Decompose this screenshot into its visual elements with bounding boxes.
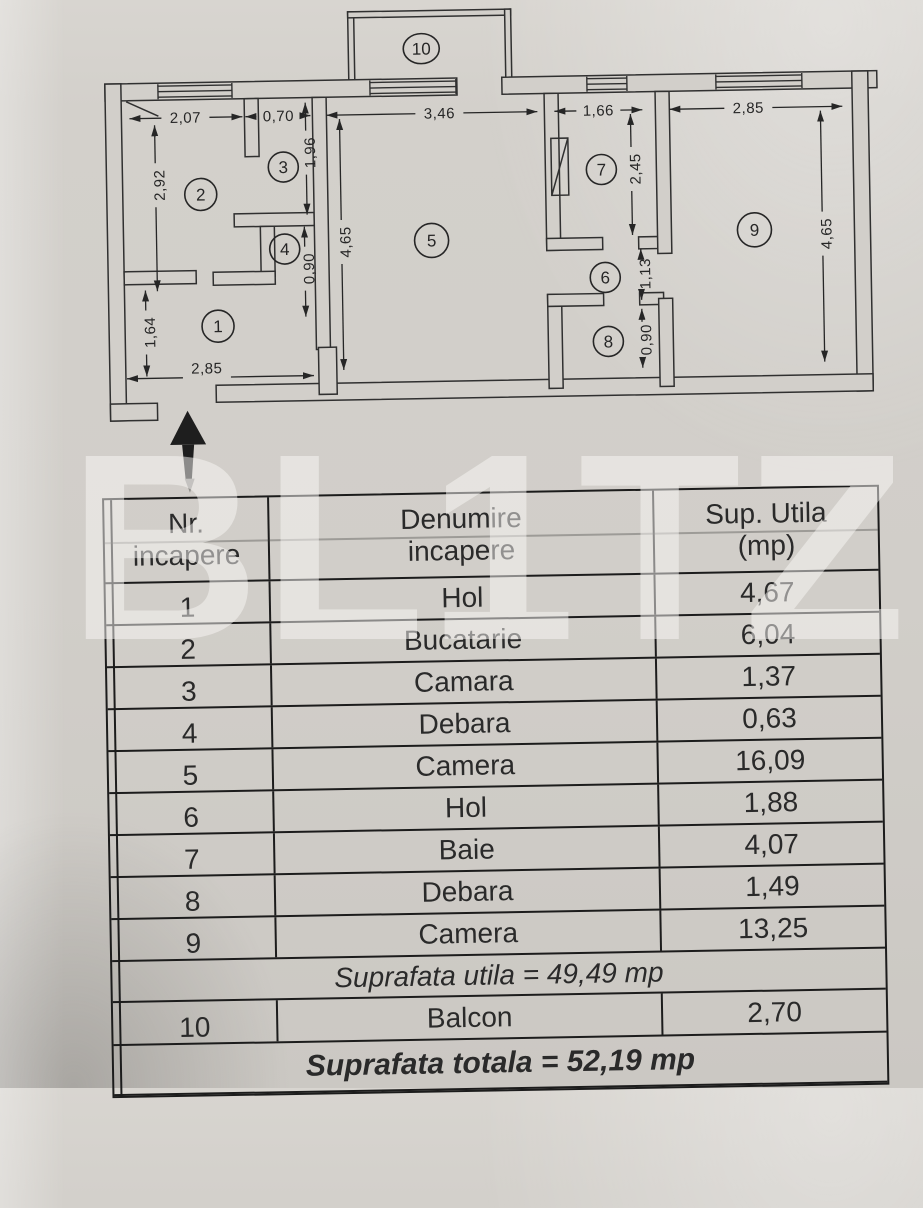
room-number-badge: 3 xyxy=(268,152,299,183)
svg-text:1: 1 xyxy=(213,317,223,336)
room-number-badge: 8 xyxy=(593,326,624,357)
wall xyxy=(260,226,275,276)
walls xyxy=(104,3,883,421)
room-area: 16,09 xyxy=(656,739,882,783)
room-nr: 10 xyxy=(179,1011,211,1044)
svg-text:8: 8 xyxy=(603,332,613,351)
room-name: Hol xyxy=(271,575,655,622)
wall xyxy=(655,91,672,253)
room-area: 1,88 xyxy=(657,781,883,825)
dimension-label: 2,85 xyxy=(733,100,764,118)
wall xyxy=(216,374,873,402)
dimension-label: 1,96 xyxy=(302,137,320,168)
room-number-badge: 5 xyxy=(414,223,449,258)
room-number-badge: 9 xyxy=(737,213,772,248)
room-nr: 5 xyxy=(182,760,198,792)
svg-text:5: 5 xyxy=(427,231,437,250)
room-area: 1,37 xyxy=(655,655,881,699)
scanned-floorplan-page: { "photo": { "paper_color": "#d2cfca", "… xyxy=(0,0,923,1088)
dimension-label: 0,90 xyxy=(638,324,656,355)
entrance-up-arrow-icon xyxy=(170,410,207,493)
svg-text:4: 4 xyxy=(280,240,290,259)
room-number-badge: 7 xyxy=(586,154,617,185)
header-name-line2: incapere xyxy=(408,534,516,568)
dimension-label: 0,90 xyxy=(301,253,319,284)
balcony-wall xyxy=(348,12,355,84)
wall xyxy=(312,97,330,349)
header-nr-line1: Nr. xyxy=(168,507,204,540)
header-area-line1: Sup. Utila xyxy=(705,497,827,531)
wall xyxy=(110,403,157,421)
wall xyxy=(124,271,196,285)
svg-text:10: 10 xyxy=(412,39,431,58)
wall xyxy=(548,294,564,388)
dimension-label: 2,45 xyxy=(627,153,645,184)
room-area-table: Nr. incapere Denumire incapere Sup. Util… xyxy=(102,485,889,1098)
room-nr: 2 xyxy=(180,634,196,666)
svg-text:7: 7 xyxy=(596,160,606,179)
dimension-label: 3,46 xyxy=(424,105,455,123)
wall xyxy=(659,298,675,386)
svg-text:2: 2 xyxy=(196,185,206,204)
svg-text:3: 3 xyxy=(278,158,288,177)
header-name-line1: Denumire xyxy=(400,502,522,536)
dimension-label: 0,70 xyxy=(263,108,294,126)
wall xyxy=(548,293,604,306)
room-nr: 9 xyxy=(185,928,201,960)
svg-text:6: 6 xyxy=(600,268,610,287)
header-area-line2: (mp) xyxy=(737,529,795,562)
room-name: Baie xyxy=(275,827,659,874)
room-name: Balcon xyxy=(278,994,662,1042)
summary-totala-text: Suprafata totala = 52,19 mp xyxy=(306,1043,696,1084)
room-nr: 1 xyxy=(179,592,195,624)
wall xyxy=(547,237,603,250)
room-number-badge: 2 xyxy=(184,178,217,211)
wall xyxy=(852,71,874,391)
table-header-row: Nr. incapere Denumire incapere Sup. Util… xyxy=(104,487,878,584)
dimension-label: 2,92 xyxy=(151,169,169,200)
room-area: 1,49 xyxy=(659,865,885,909)
room-number-badge: 6 xyxy=(590,262,621,293)
room-name: Camera xyxy=(276,911,660,958)
room-name: Camera xyxy=(273,743,657,790)
svg-text:9: 9 xyxy=(750,221,760,240)
header-nr-line2: incapere xyxy=(133,539,241,573)
door-swing-line xyxy=(126,101,158,117)
dimension-label: 2,07 xyxy=(170,109,201,127)
room-nr: 8 xyxy=(185,886,201,918)
floor-plan-drawing: 2,07 0,70 3,46 1,66 2,85 2,85 2,92 1,96 … xyxy=(0,0,922,518)
room-area: 4,07 xyxy=(658,823,884,867)
window xyxy=(587,76,627,92)
dimension-label: 2,85 xyxy=(191,360,222,378)
wall xyxy=(318,347,337,394)
room-area: 13,25 xyxy=(659,907,885,951)
summary-utila-text: Suprafata utila = 49,49 mp xyxy=(334,956,664,994)
room-nr: 6 xyxy=(183,802,199,834)
balcony-wall xyxy=(348,9,511,18)
wall xyxy=(244,98,259,156)
room-nr: 4 xyxy=(182,718,198,750)
window xyxy=(158,83,232,99)
room-area: 4,67 xyxy=(653,571,879,615)
room-nr: 3 xyxy=(181,676,197,708)
dimension-label: 4,65 xyxy=(818,218,836,249)
photo-rotation-wrap: 2,07 0,70 3,46 1,66 2,85 2,85 2,92 1,96 … xyxy=(0,0,923,1208)
balcony-wall xyxy=(505,9,512,81)
wall xyxy=(213,271,275,285)
dimension-label: 4,65 xyxy=(337,226,355,257)
dimension-label: 1,64 xyxy=(142,317,160,348)
room-name: Hol xyxy=(274,785,658,832)
dimension-label: 1,66 xyxy=(583,102,614,120)
room-name: Bucatarie xyxy=(271,617,655,664)
room-number-badge: 1 xyxy=(202,310,235,343)
room-area: 6,04 xyxy=(654,613,880,657)
room-area: 0,63 xyxy=(656,697,882,741)
dimension-label: 1,13 xyxy=(637,258,655,289)
wall xyxy=(105,84,127,421)
room-name: Debara xyxy=(276,869,660,916)
room-area: 2,70 xyxy=(661,990,887,1035)
room-name: Debara xyxy=(273,701,657,748)
room-nr: 7 xyxy=(184,844,200,876)
wall xyxy=(234,213,314,227)
wall xyxy=(502,71,877,95)
room-number-badge: 10 xyxy=(403,33,440,64)
room-name: Camara xyxy=(272,659,656,706)
dimension-labels: 2,07 0,70 3,46 1,66 2,85 2,85 2,92 1,96 … xyxy=(138,98,838,378)
